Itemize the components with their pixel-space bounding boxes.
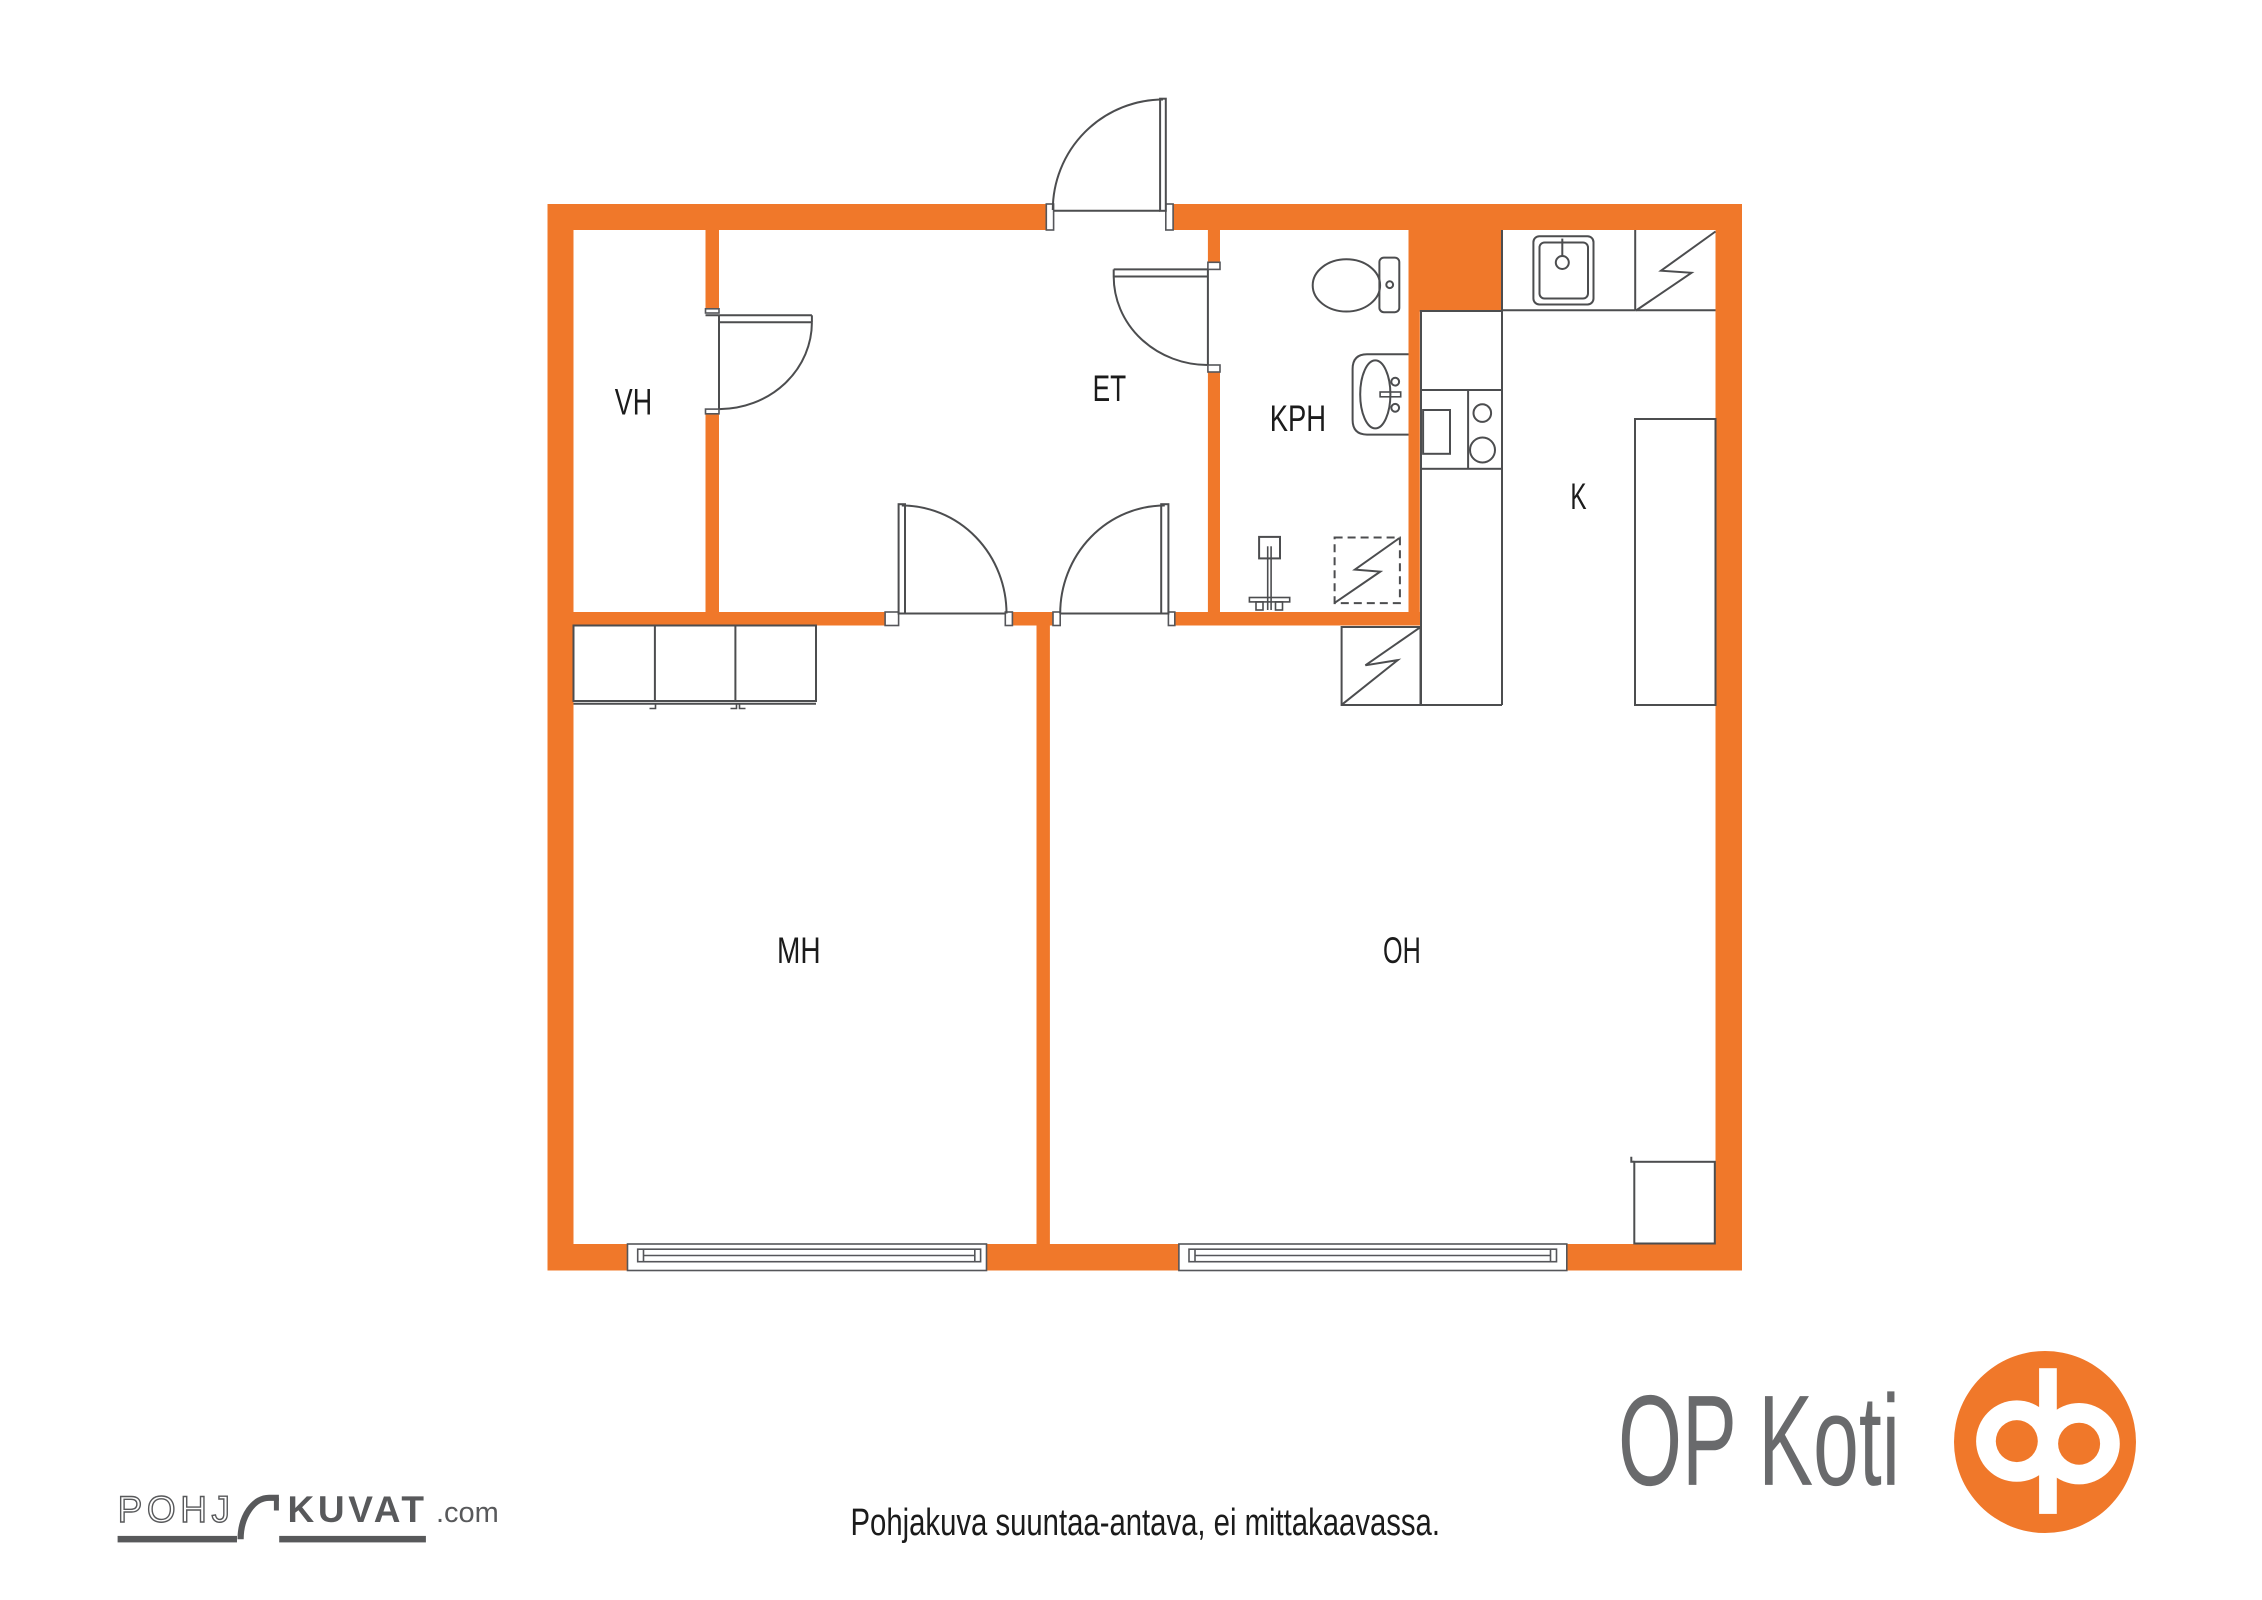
svg-text:Pohjakuva suuntaa-antava, ei m: Pohjakuva suuntaa-antava, ei mittakaavas… bbox=[851, 1502, 1441, 1544]
svg-text:.com: .com bbox=[436, 1497, 499, 1529]
svg-text:K: K bbox=[1570, 475, 1586, 517]
svg-text:VH: VH bbox=[615, 380, 652, 422]
svg-text:KPH: KPH bbox=[1270, 397, 1326, 439]
svg-text:OH: OH bbox=[1383, 929, 1421, 971]
svg-text:OP Koti: OP Koti bbox=[1618, 1369, 1900, 1513]
svg-text:MH: MH bbox=[777, 929, 821, 971]
svg-text:ET: ET bbox=[1093, 367, 1127, 409]
svg-text:POHJ: POHJ bbox=[118, 1489, 230, 1530]
svg-text:KUVAT: KUVAT bbox=[288, 1489, 425, 1530]
